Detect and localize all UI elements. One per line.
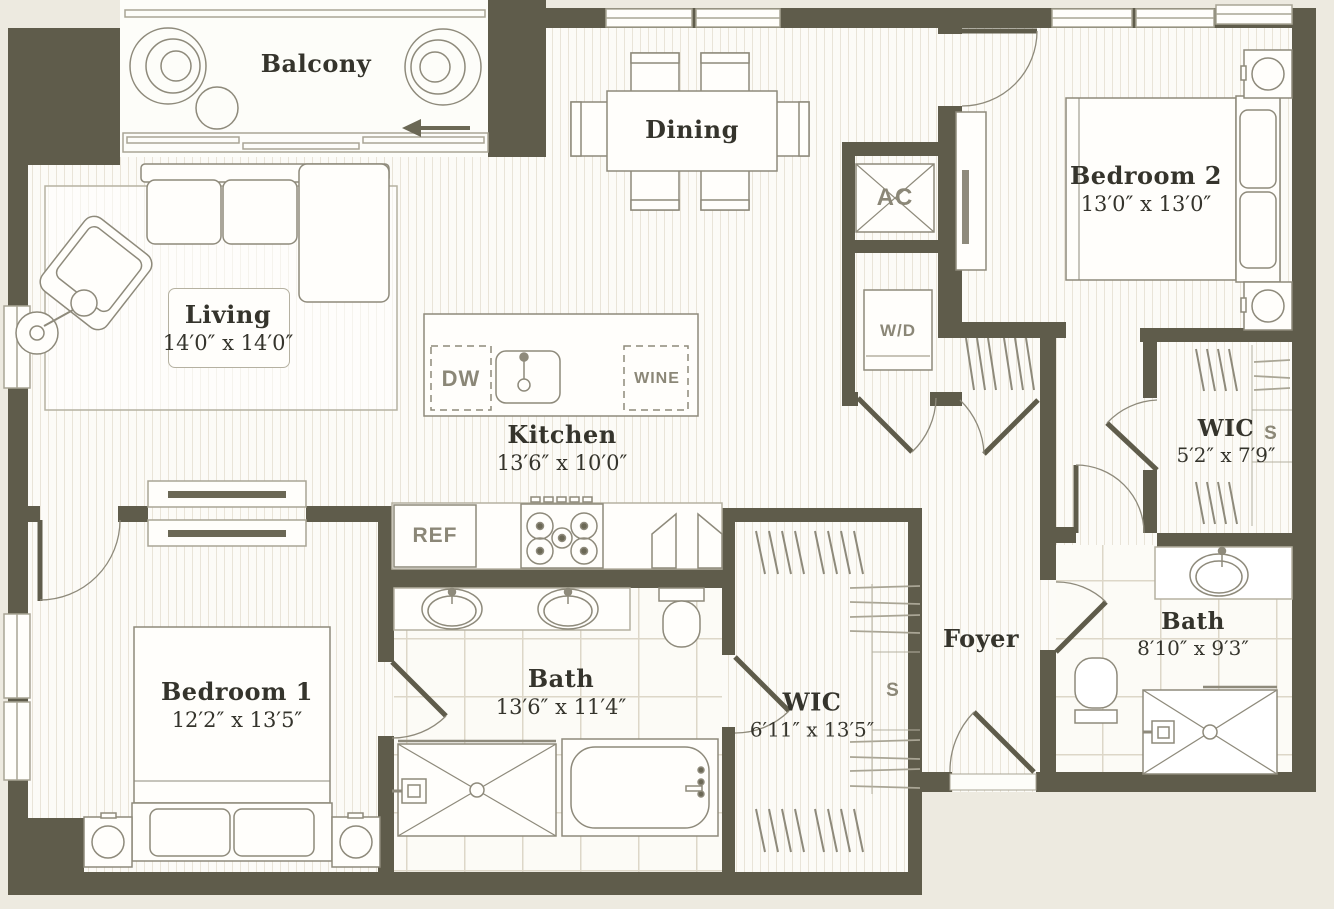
living-title: Living	[163, 302, 294, 328]
labels-layer: Balcony Dining Living 14′0″ x 14′0″ Kitc…	[0, 0, 1334, 909]
wic-bedroom2-dims: 5′2″ x 7′9″	[1177, 445, 1276, 466]
room-label-bath-main: Bath 13′6″ x 11′4″	[496, 666, 627, 718]
wic-bedroom2-title: WIC	[1177, 416, 1276, 441]
bedroom1-title: Bedroom 1	[161, 679, 313, 705]
bedroom2-title: Bedroom 2	[1070, 163, 1222, 189]
wic-bedroom1-dims: 6′11″ x 13′5″	[750, 720, 874, 741]
bath-main-title: Bath	[496, 666, 627, 692]
room-label-wic-bedroom2: WIC 5′2″ x 7′9″	[1177, 416, 1276, 466]
foyer-title: Foyer	[943, 626, 1019, 652]
ac-label: AC	[877, 184, 914, 212]
living-dims: 14′0″ x 14′0″	[163, 332, 294, 354]
refrigerator-label: REF	[413, 524, 458, 548]
room-label-foyer: Foyer	[943, 626, 1019, 652]
room-label-bedroom1: Bedroom 1 12′2″ x 13′5″	[161, 679, 313, 731]
kitchen-dims: 13′6″ x 10′0″	[497, 452, 628, 474]
bedroom2-dims: 13′0″ x 13′0″	[1070, 193, 1222, 215]
room-label-wic-bedroom1: WIC 6′11″ x 13′5″	[750, 689, 874, 740]
kitchen-title: Kitchen	[497, 422, 628, 448]
room-label-bedroom2: Bedroom 2 13′0″ x 13′0″	[1070, 163, 1222, 215]
room-label-dining: Dining	[645, 117, 739, 143]
room-label-bath2: Bath 8′10″ x 9′3″	[1137, 609, 1249, 659]
room-label-kitchen: Kitchen 13′6″ x 10′0″	[497, 422, 628, 474]
shelf-label-wic-bedroom1: S	[886, 680, 900, 702]
shelf-label-wic-bedroom2: S	[1264, 423, 1278, 445]
bath-main-dims: 13′6″ x 11′4″	[496, 696, 627, 718]
bath2-title: Bath	[1137, 609, 1249, 634]
floor-plan: Balcony Dining Living 14′0″ x 14′0″ Kitc…	[0, 0, 1334, 909]
room-label-balcony: Balcony	[261, 51, 371, 77]
washer-dryer-label: W/D	[880, 321, 916, 341]
bath2-dims: 8′10″ x 9′3″	[1137, 638, 1249, 659]
room-label-living: Living 14′0″ x 14′0″	[163, 302, 294, 354]
dishwasher-label: DW	[442, 366, 481, 392]
wic-bedroom1-title: WIC	[750, 689, 874, 715]
wine-label: WINE	[634, 370, 680, 388]
balcony-title: Balcony	[261, 51, 371, 77]
dining-title: Dining	[645, 117, 739, 143]
bedroom1-dims: 12′2″ x 13′5″	[161, 709, 313, 731]
